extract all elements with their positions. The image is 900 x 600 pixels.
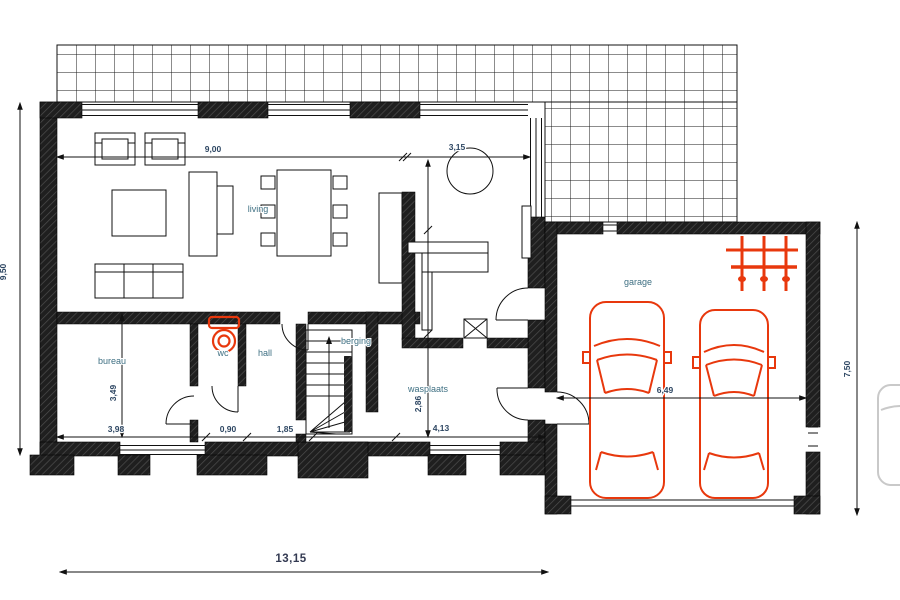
bike-icon bbox=[753, 236, 775, 291]
floor-plan-canvas: living bureau wc hall berging wasplaats … bbox=[0, 0, 900, 600]
living-furniture bbox=[95, 133, 531, 338]
car-2 bbox=[693, 310, 775, 498]
dim-wc-width: 0,90 bbox=[220, 424, 237, 434]
car-1 bbox=[583, 302, 671, 498]
dim-total-width: 13,15 bbox=[275, 553, 306, 565]
dim-bureau-width: 3,98 bbox=[108, 424, 125, 434]
room-label-wasplaats: wasplaats bbox=[407, 384, 449, 394]
sideboard bbox=[522, 206, 531, 258]
dim-nook-width: 3,15 bbox=[449, 142, 466, 152]
dim-bureau-depth: 3,49 bbox=[108, 384, 118, 401]
dim-garage-depth: 7,50 bbox=[842, 360, 852, 377]
door-wc bbox=[212, 386, 238, 412]
dim-house-depth: 9,50 bbox=[0, 263, 8, 280]
dining-table bbox=[261, 170, 347, 256]
coffee-table bbox=[112, 190, 166, 236]
bike-icon bbox=[731, 236, 753, 291]
room-label-berging: berging bbox=[341, 336, 371, 346]
room-label-bureau: bureau bbox=[98, 356, 126, 366]
door-side bbox=[497, 388, 528, 420]
floor-plan-drawing: living bureau wc hall berging wasplaats … bbox=[0, 0, 900, 600]
armchair bbox=[95, 133, 135, 165]
kitchen-wall-stub bbox=[402, 192, 415, 340]
door-wasplaats bbox=[496, 288, 528, 320]
dim-hall-width: 1,85 bbox=[277, 424, 294, 434]
round-table bbox=[447, 148, 493, 194]
ghost-car bbox=[878, 385, 900, 485]
bike-icon bbox=[775, 236, 797, 291]
room-label-wc: wc bbox=[217, 348, 229, 358]
chaise-sofa bbox=[189, 172, 233, 256]
room-label-living: living bbox=[248, 204, 269, 214]
armchair bbox=[145, 133, 185, 165]
room-label-hall: hall bbox=[258, 348, 272, 358]
appliance-box bbox=[464, 319, 487, 338]
wall-left bbox=[40, 102, 57, 455]
corner-glass bbox=[531, 118, 542, 217]
dim-garage-width: 6,49 bbox=[657, 385, 674, 395]
door-garage bbox=[557, 392, 589, 424]
dim-wasplaats-width: 4,13 bbox=[433, 423, 450, 433]
bike-rack-icon bbox=[726, 236, 798, 291]
dim-living-width: 9,00 bbox=[205, 144, 222, 154]
cabinet bbox=[379, 193, 402, 283]
room-label-garage: garage bbox=[624, 277, 652, 287]
dim-wasplaats-depth: 2,86 bbox=[413, 395, 423, 412]
sofa bbox=[95, 264, 183, 298]
